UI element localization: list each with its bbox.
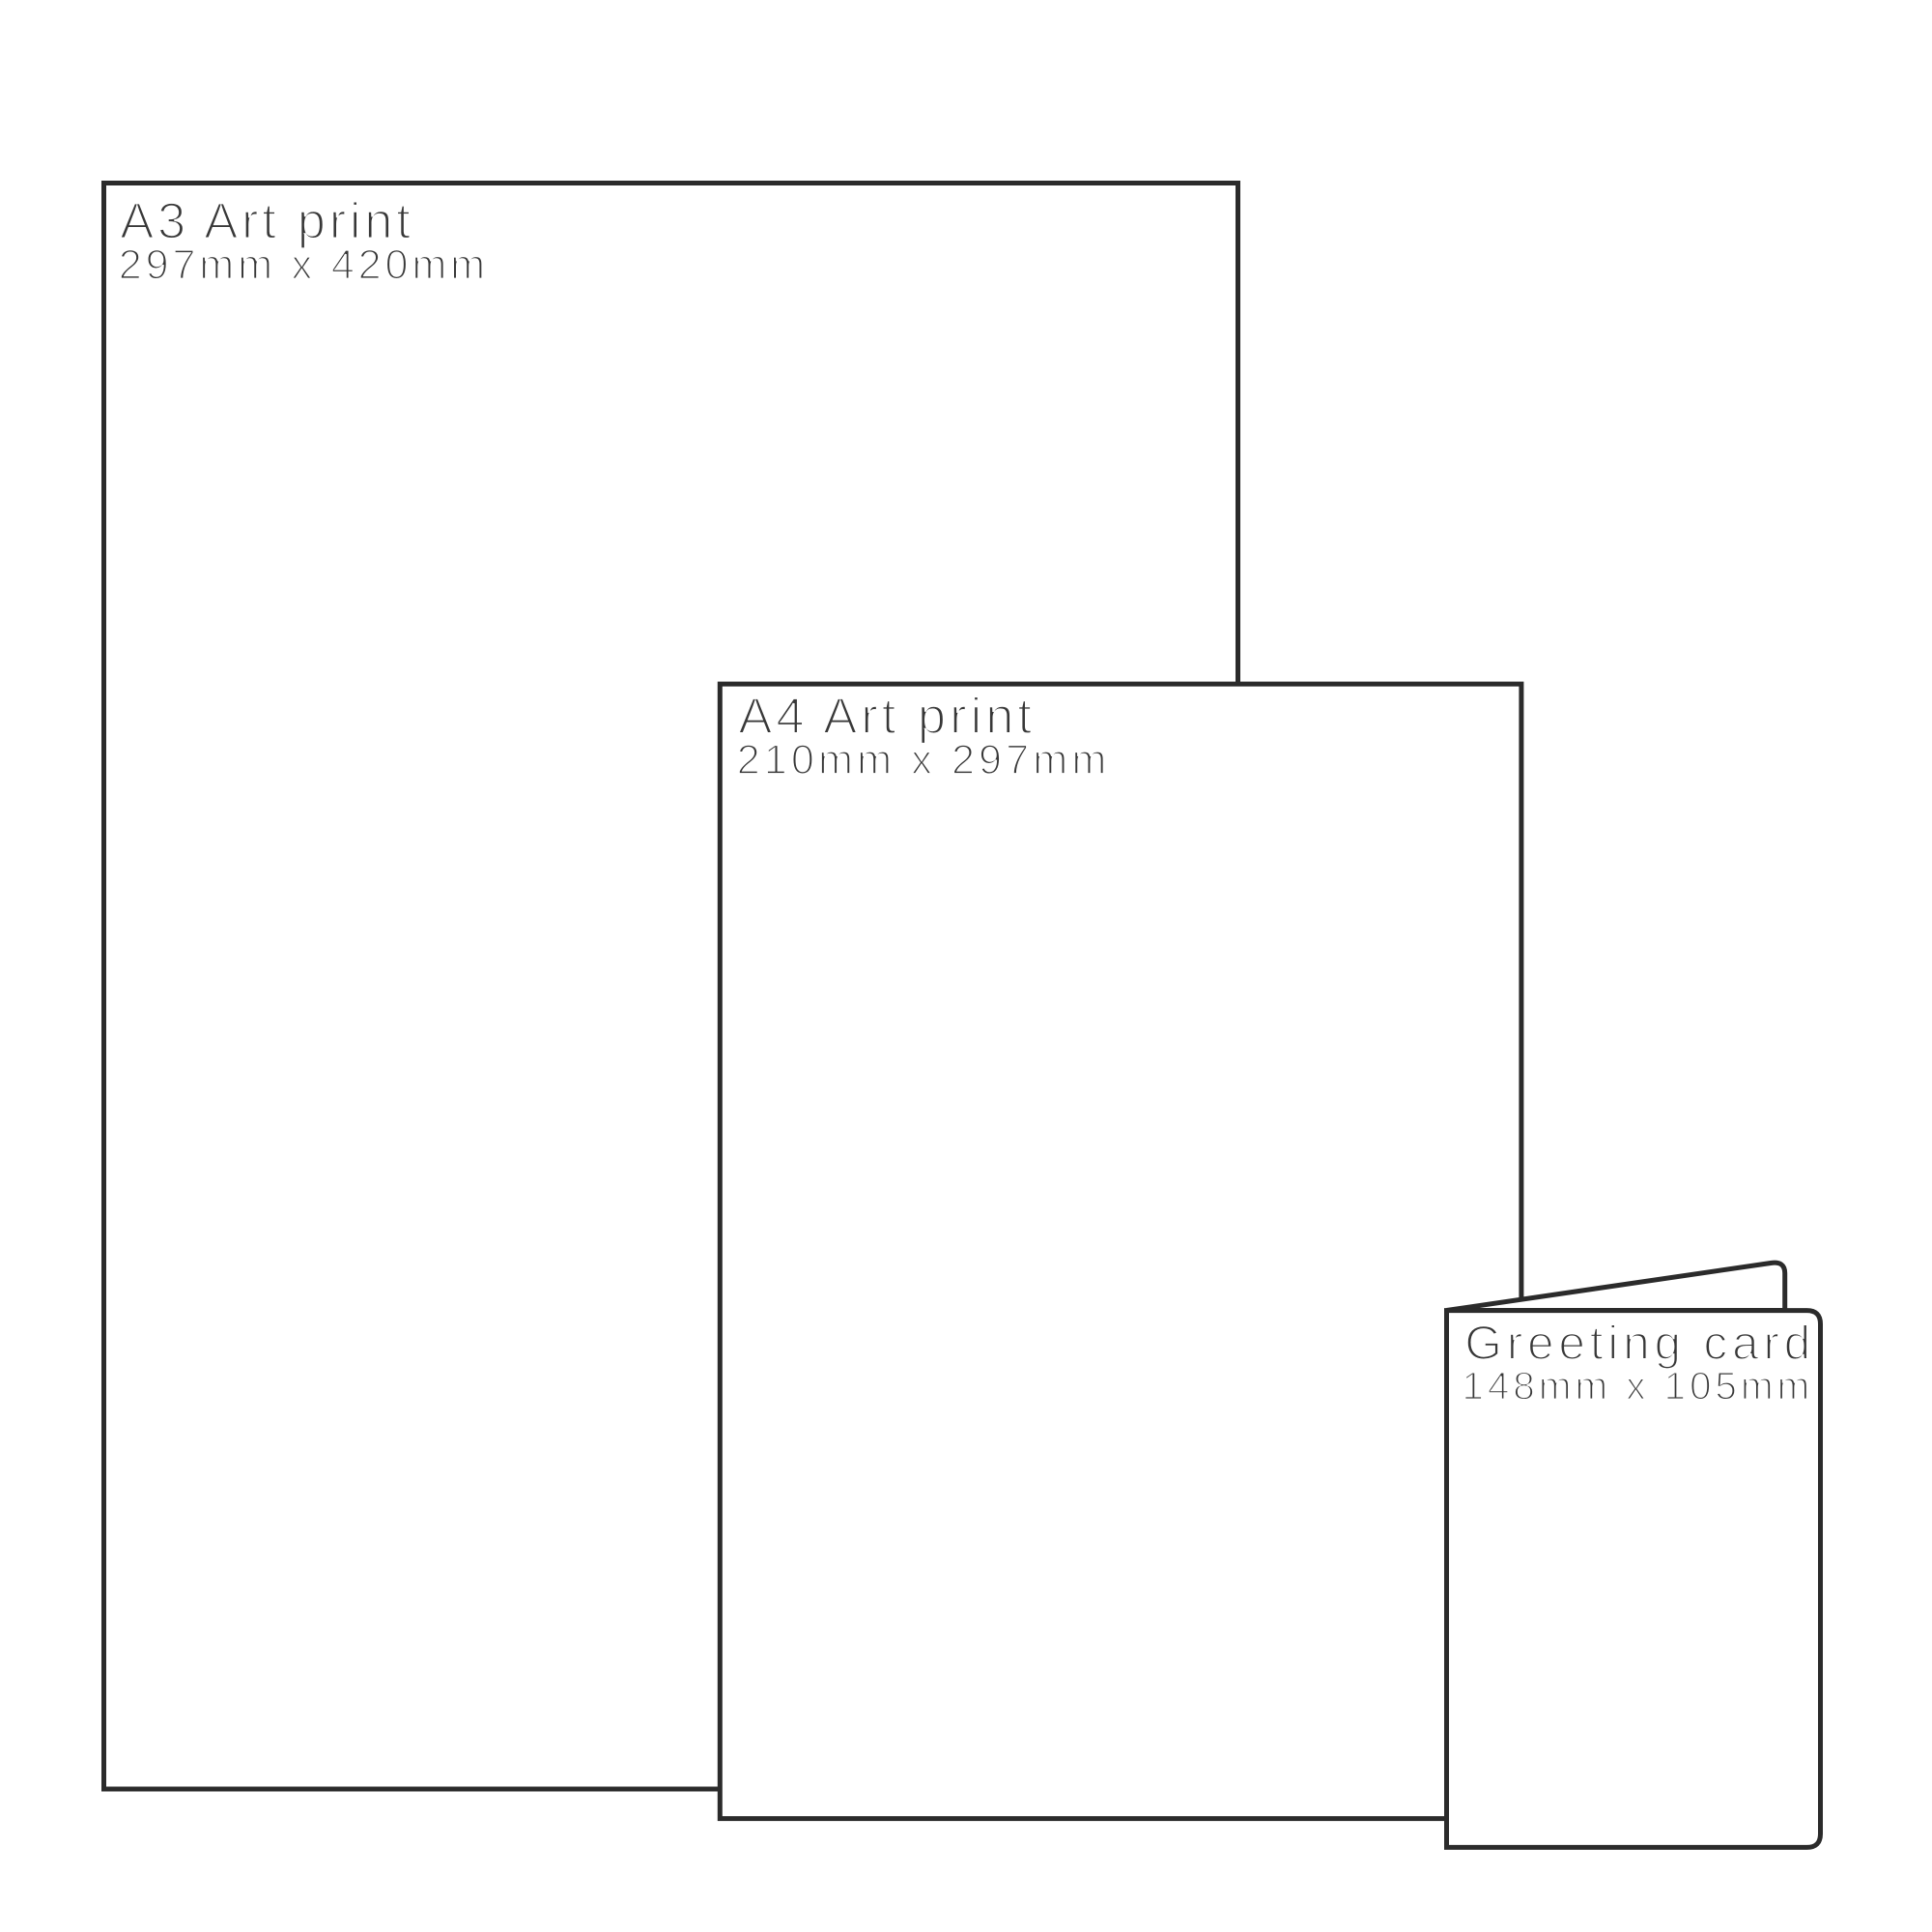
svg-text:148mm x 105mm: 148mm x 105mm [1462, 1363, 1809, 1407]
svg-text:A3 Art print: A3 Art print [120, 192, 411, 249]
svg-text:297mm x 420mm: 297mm x 420mm [119, 242, 485, 289]
svg-text:210mm x 297mm: 210mm x 297mm [737, 737, 1107, 783]
svg-text:A4 Art print: A4 Art print [738, 688, 1032, 745]
svg-text:Greeting card: Greeting card [1464, 1316, 1810, 1370]
